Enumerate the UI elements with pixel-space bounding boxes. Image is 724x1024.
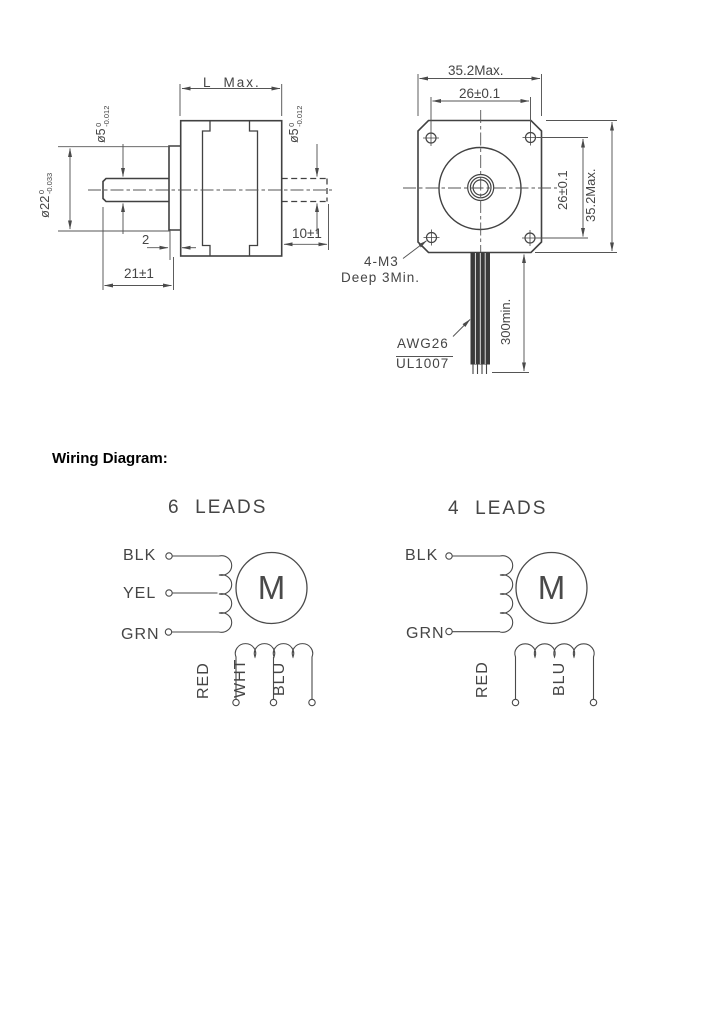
lead-label-yel: YEL (123, 585, 156, 603)
mounting-note-line1: 4-M3 (364, 255, 399, 270)
engineering-drawing (0, 0, 724, 1024)
mounting-hole (522, 230, 538, 246)
terminal-blu (309, 699, 315, 705)
terminal-blu (590, 699, 596, 705)
terminal-blk (166, 553, 172, 559)
six-leads-title: 6 LEADS (168, 498, 267, 519)
mounting-note-line2: Deep 3Min. (341, 271, 420, 286)
terminal-yel (166, 590, 172, 596)
mounting-hole (523, 130, 539, 146)
dim-base: ø5 (288, 128, 301, 143)
wire-type-label: UL1007 (396, 357, 449, 372)
terminal-wht (270, 699, 276, 705)
lead-label-blk: BLK (123, 547, 156, 565)
end-cap-profile-left (203, 121, 211, 256)
wire-gauge-label: AWG26 (397, 337, 449, 352)
dimension-front-shaft-length: 21±1 (124, 267, 154, 282)
end-cap-profile-right (250, 121, 258, 256)
mounting-hole (423, 130, 439, 146)
front-centerlines (403, 110, 557, 252)
lead-wire-bundle (471, 253, 491, 374)
dim-tolerance: 0-0.012 (95, 106, 110, 127)
mounting-note-leader (403, 241, 427, 259)
terminal-red (512, 699, 518, 705)
flange-outline (418, 121, 542, 253)
dim-tolerance: 0-0.012 (288, 106, 303, 127)
body-circle (439, 148, 521, 230)
lead-label-blk: BLK (405, 547, 438, 565)
dimension-pilot-depth: 2 (142, 233, 149, 247)
dimension-length-max: L Max. (203, 76, 261, 91)
four-leads-schematic (446, 553, 597, 706)
phase-a-coil (500, 556, 513, 633)
lead-label-grn: GRN (121, 626, 160, 644)
terminal-red (233, 699, 239, 705)
terminal-blk (446, 553, 452, 559)
lead-label-grn: GRN (406, 625, 445, 643)
dimension-body-width: 35.2Max. (448, 64, 504, 79)
motor-body-outline (181, 121, 282, 256)
front-view (403, 110, 557, 374)
terminal-grn (446, 628, 452, 634)
dim-base: ø22 (38, 196, 51, 218)
wiring-diagram-heading: Wiring Diagram: (52, 451, 168, 468)
dimension-rear-shaft-length: 10±1 (292, 227, 322, 242)
wire-spec-leader (453, 320, 470, 337)
dimension-hole-spacing-horizontal: 26±0.1 (459, 87, 500, 102)
mounting-hole (424, 230, 440, 246)
four-leads-title: 4 LEADS (448, 499, 547, 520)
dim-base: ø5 (95, 128, 108, 143)
phase-a-coil (219, 556, 232, 633)
wire-tails (473, 365, 487, 375)
motor-symbol: M (531, 569, 572, 607)
terminal-grn (165, 629, 171, 635)
dim-tolerance: 0-0.033 (38, 173, 53, 194)
motor-symbol: M (251, 569, 292, 607)
pilot-boss (169, 146, 181, 230)
spec-sheet-page: L Max. ø50-0.012 ø220-0.033 2 21±1 10±1 … (0, 0, 724, 1024)
